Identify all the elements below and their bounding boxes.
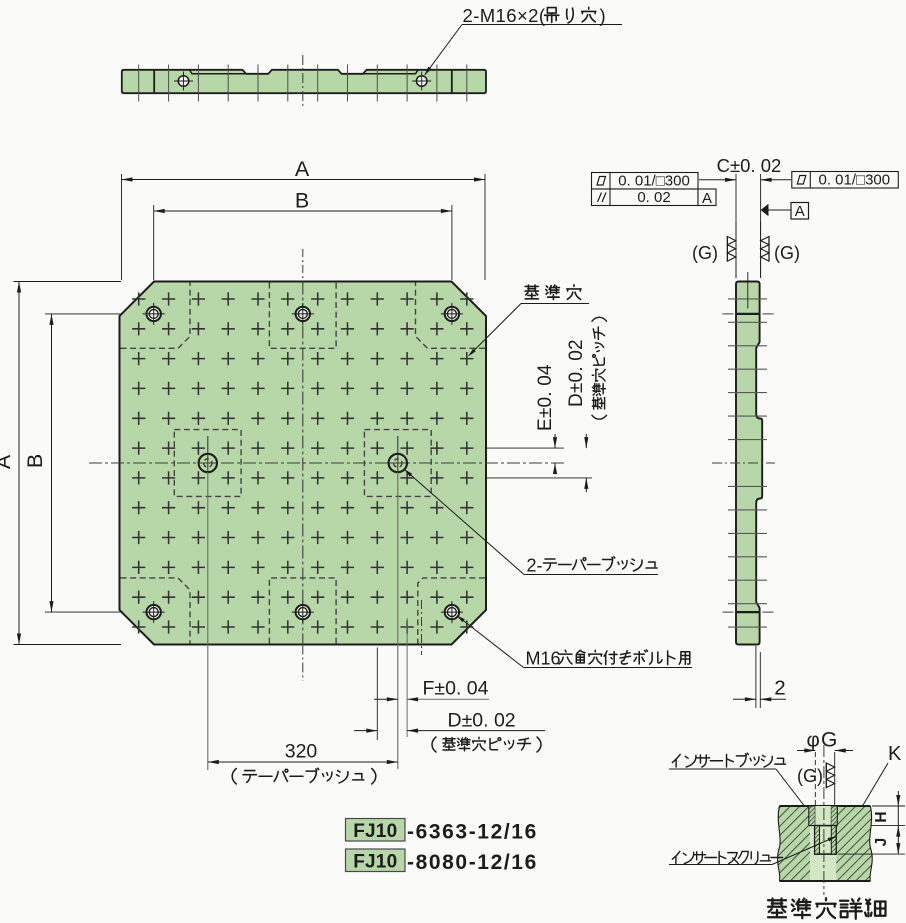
svg-text:J: J	[873, 838, 890, 847]
svg-text:B: B	[23, 454, 47, 468]
svg-text:A: A	[295, 157, 310, 181]
svg-text:2-M16×2(: 2-M16×2(	[463, 5, 546, 26]
svg-text:A: A	[0, 454, 15, 469]
svg-text:φ: φ	[807, 729, 820, 752]
svg-text:C±0. 02: C±0. 02	[717, 155, 782, 176]
svg-text:FJ10: FJ10	[353, 821, 397, 842]
svg-text:A: A	[702, 190, 712, 207]
svg-text:2-: 2-	[527, 556, 543, 576]
svg-text:0. 02: 0. 02	[637, 189, 670, 206]
svg-text:320: 320	[285, 741, 318, 763]
svg-text:M16: M16	[526, 649, 561, 669]
svg-text:): )	[600, 5, 606, 26]
svg-text:K: K	[888, 743, 902, 765]
svg-text:(G): (G)	[797, 766, 823, 786]
svg-text:B: B	[295, 189, 309, 213]
svg-text:(G): (G)	[692, 243, 718, 263]
svg-text:-8080-12/16: -8080-12/16	[407, 851, 538, 874]
svg-text:D±0. 02: D±0. 02	[448, 710, 516, 732]
svg-text:(G): (G)	[774, 243, 800, 263]
svg-text:A: A	[795, 203, 805, 220]
svg-text:E±0. 04: E±0. 04	[535, 364, 556, 431]
svg-text:FJ10: FJ10	[353, 852, 397, 873]
svg-text:G: G	[821, 729, 837, 752]
svg-text:2: 2	[774, 677, 785, 700]
svg-text:0. 01/□300: 0. 01/□300	[818, 171, 890, 188]
svg-text:H: H	[873, 811, 890, 822]
svg-text:-6363-12/16: -6363-12/16	[407, 821, 538, 844]
svg-text:0. 01/□300: 0. 01/□300	[618, 172, 690, 189]
svg-text:D±0. 02: D±0. 02	[566, 339, 587, 407]
svg-text:F±0. 04: F±0. 04	[423, 678, 489, 700]
